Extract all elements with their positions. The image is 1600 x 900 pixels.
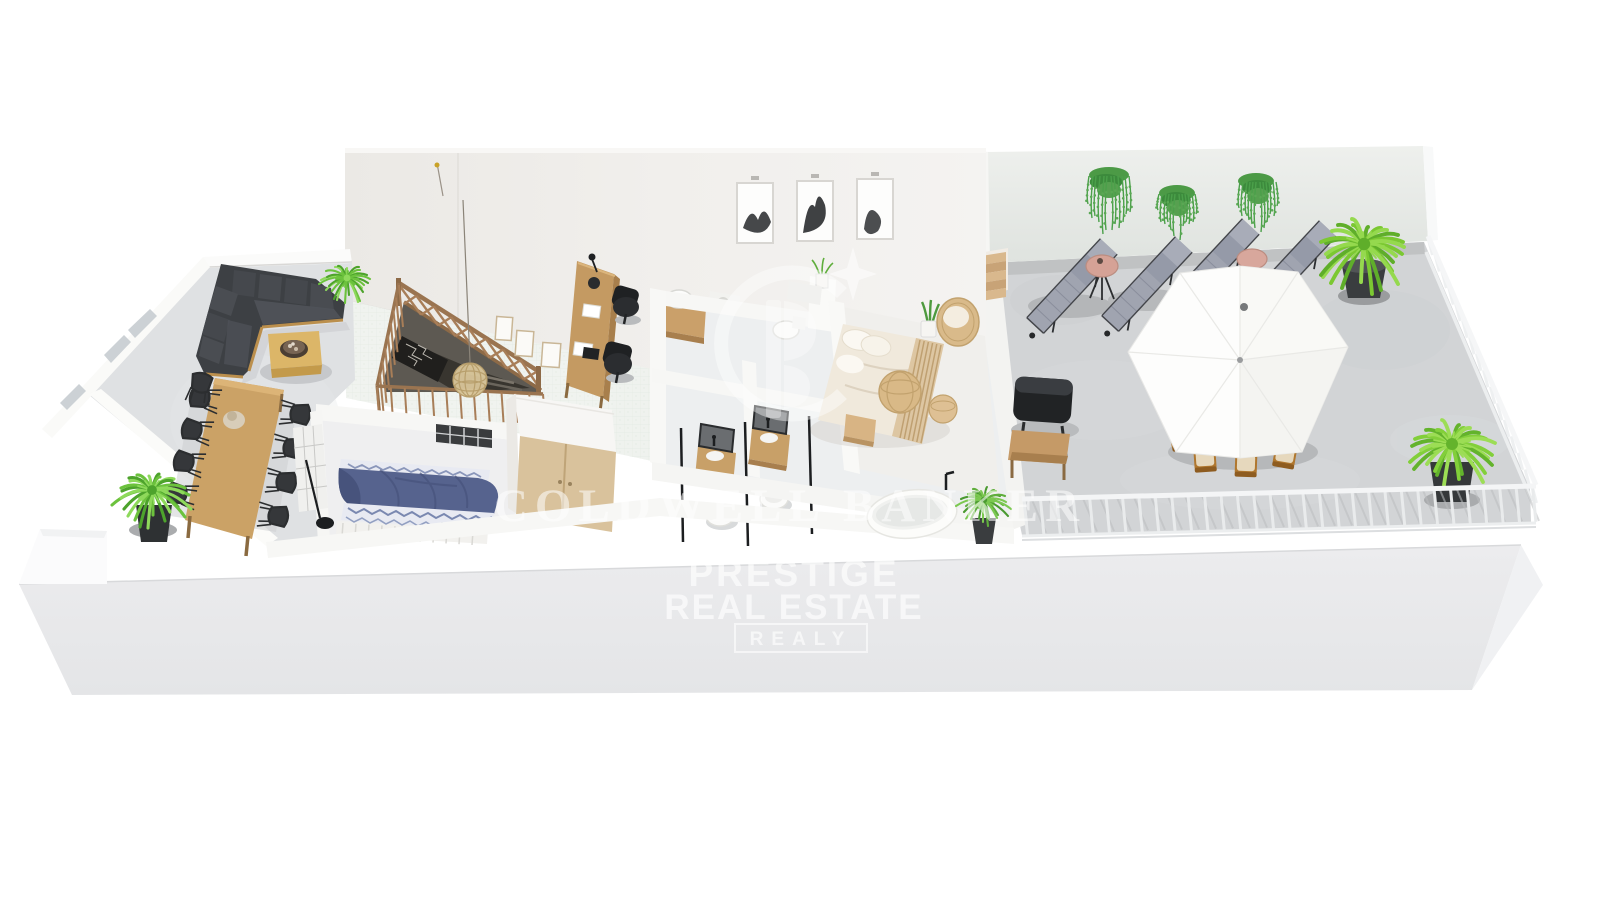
svg-text:REAL ESTATE: REAL ESTATE: [664, 588, 923, 627]
svg-text:REALY: REALY: [750, 629, 853, 650]
svg-text:COLDWELL BANKER: COLDWELL BANKER: [494, 480, 1086, 532]
